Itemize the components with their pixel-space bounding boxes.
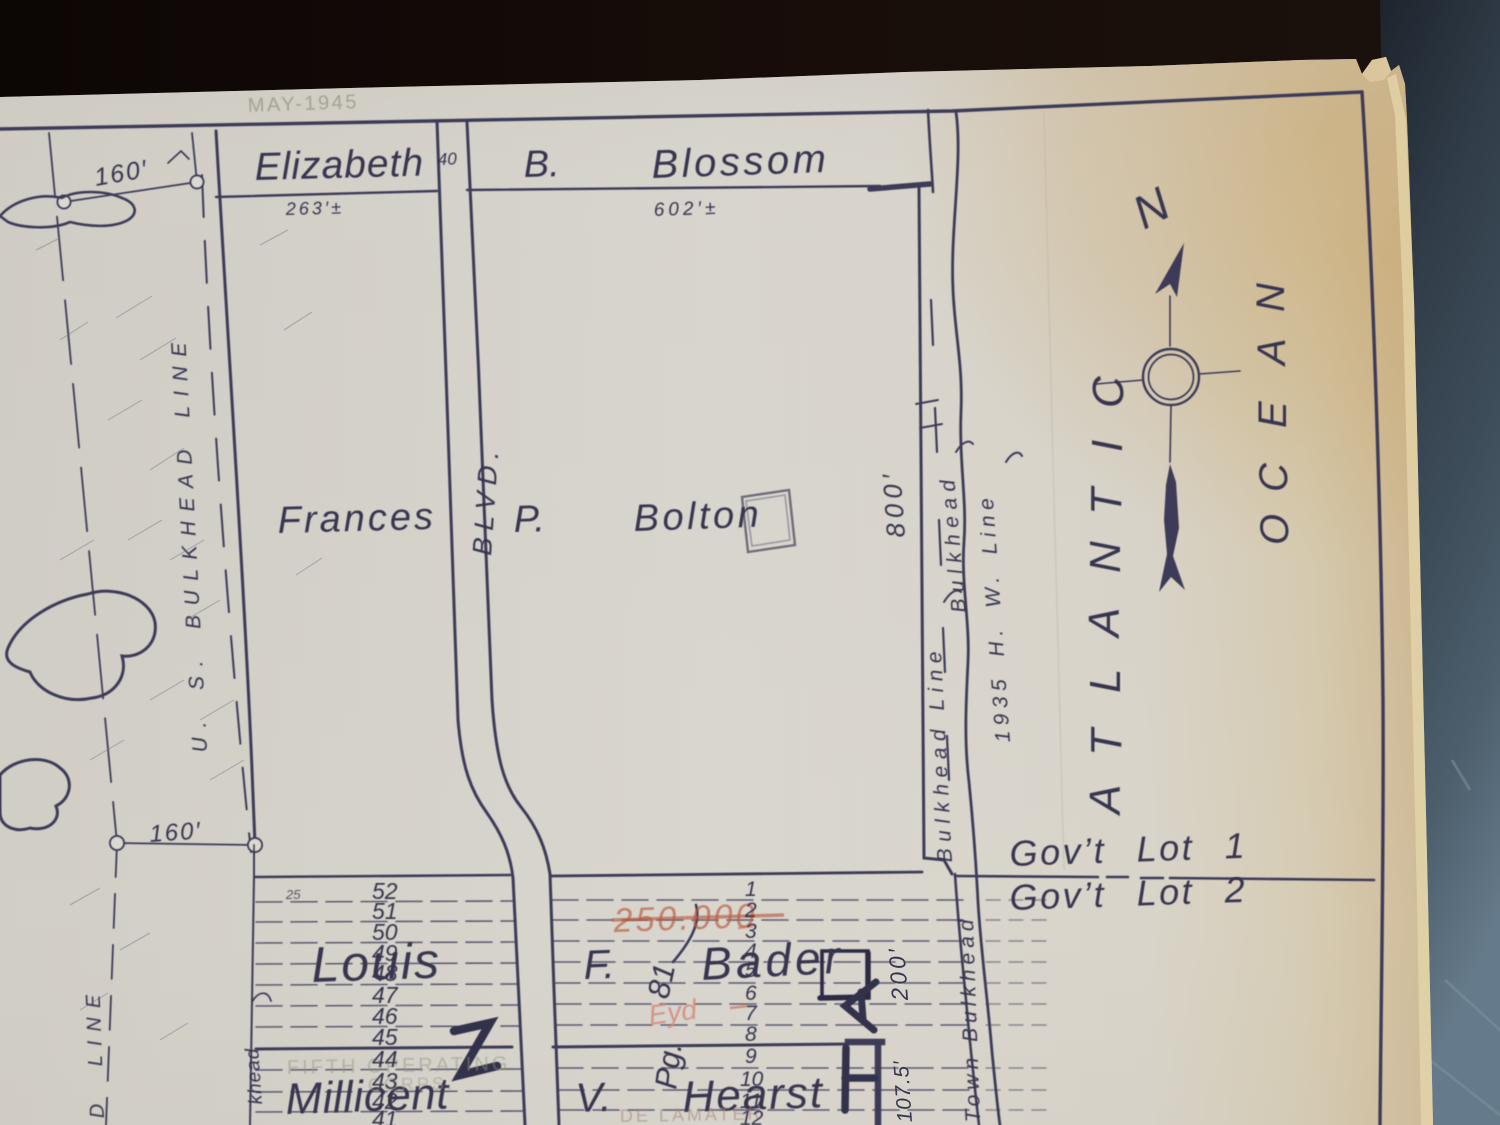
svg-text:2: 2 bbox=[744, 899, 757, 922]
svg-text:Frances: Frances bbox=[277, 496, 436, 542]
svg-text:12: 12 bbox=[740, 1107, 764, 1125]
svg-text:Gov’t Lot 1: Gov’t Lot 1 bbox=[1009, 825, 1248, 874]
svg-text:N: N bbox=[1081, 541, 1130, 573]
svg-text:10: 10 bbox=[740, 1068, 764, 1091]
svg-text:T: T bbox=[1082, 726, 1131, 756]
svg-text:MAY-1945: MAY-1945 bbox=[247, 91, 359, 117]
svg-text:5: 5 bbox=[745, 959, 757, 982]
svg-text:Elizabeth: Elizabeth bbox=[254, 142, 425, 189]
svg-text:Pg.: Pg. bbox=[648, 1040, 688, 1090]
svg-text:263′±: 263′± bbox=[285, 197, 345, 219]
svg-text:A: A bbox=[1250, 338, 1294, 367]
svg-text:T: T bbox=[1082, 485, 1131, 515]
svg-text:C: C bbox=[1252, 462, 1296, 492]
svg-text:F.: F. bbox=[583, 941, 616, 988]
svg-text:A: A bbox=[1081, 785, 1130, 817]
svg-text:I: I bbox=[1083, 440, 1132, 452]
svg-text:Blossom: Blossom bbox=[651, 137, 830, 187]
svg-text:Bader: Bader bbox=[700, 931, 845, 990]
svg-text:P.: P. bbox=[513, 498, 545, 541]
svg-text:41: 41 bbox=[372, 1106, 398, 1125]
svg-text:9: 9 bbox=[745, 1045, 757, 1068]
svg-text:Gov’t Lot 2: Gov’t Lot 2 bbox=[1009, 869, 1248, 918]
svg-text:7: 7 bbox=[745, 1002, 758, 1025]
svg-text:O: O bbox=[1253, 514, 1297, 545]
svg-text:N: N bbox=[1249, 283, 1293, 312]
svg-text:khead: khead bbox=[242, 1047, 267, 1106]
svg-text:V.: V. bbox=[575, 1074, 612, 1121]
svg-text:40: 40 bbox=[437, 149, 457, 169]
svg-text:602′±: 602′± bbox=[653, 198, 719, 221]
svg-text:8: 8 bbox=[745, 1023, 757, 1046]
svg-text:Bolton: Bolton bbox=[633, 494, 763, 540]
svg-text:A: A bbox=[1080, 608, 1129, 640]
svg-text:1: 1 bbox=[745, 878, 757, 901]
svg-text:B.: B. bbox=[523, 143, 560, 186]
svg-text:C: C bbox=[1084, 375, 1133, 408]
svg-text:E: E bbox=[1251, 400, 1295, 428]
svg-text:160′: 160′ bbox=[149, 817, 203, 848]
svg-text:200′: 200′ bbox=[883, 945, 913, 1002]
svg-text:107.5′: 107.5′ bbox=[890, 1059, 917, 1123]
svg-text:25: 25 bbox=[285, 887, 301, 902]
svg-text:800′: 800′ bbox=[876, 468, 911, 538]
svg-text:L: L bbox=[1081, 669, 1130, 693]
